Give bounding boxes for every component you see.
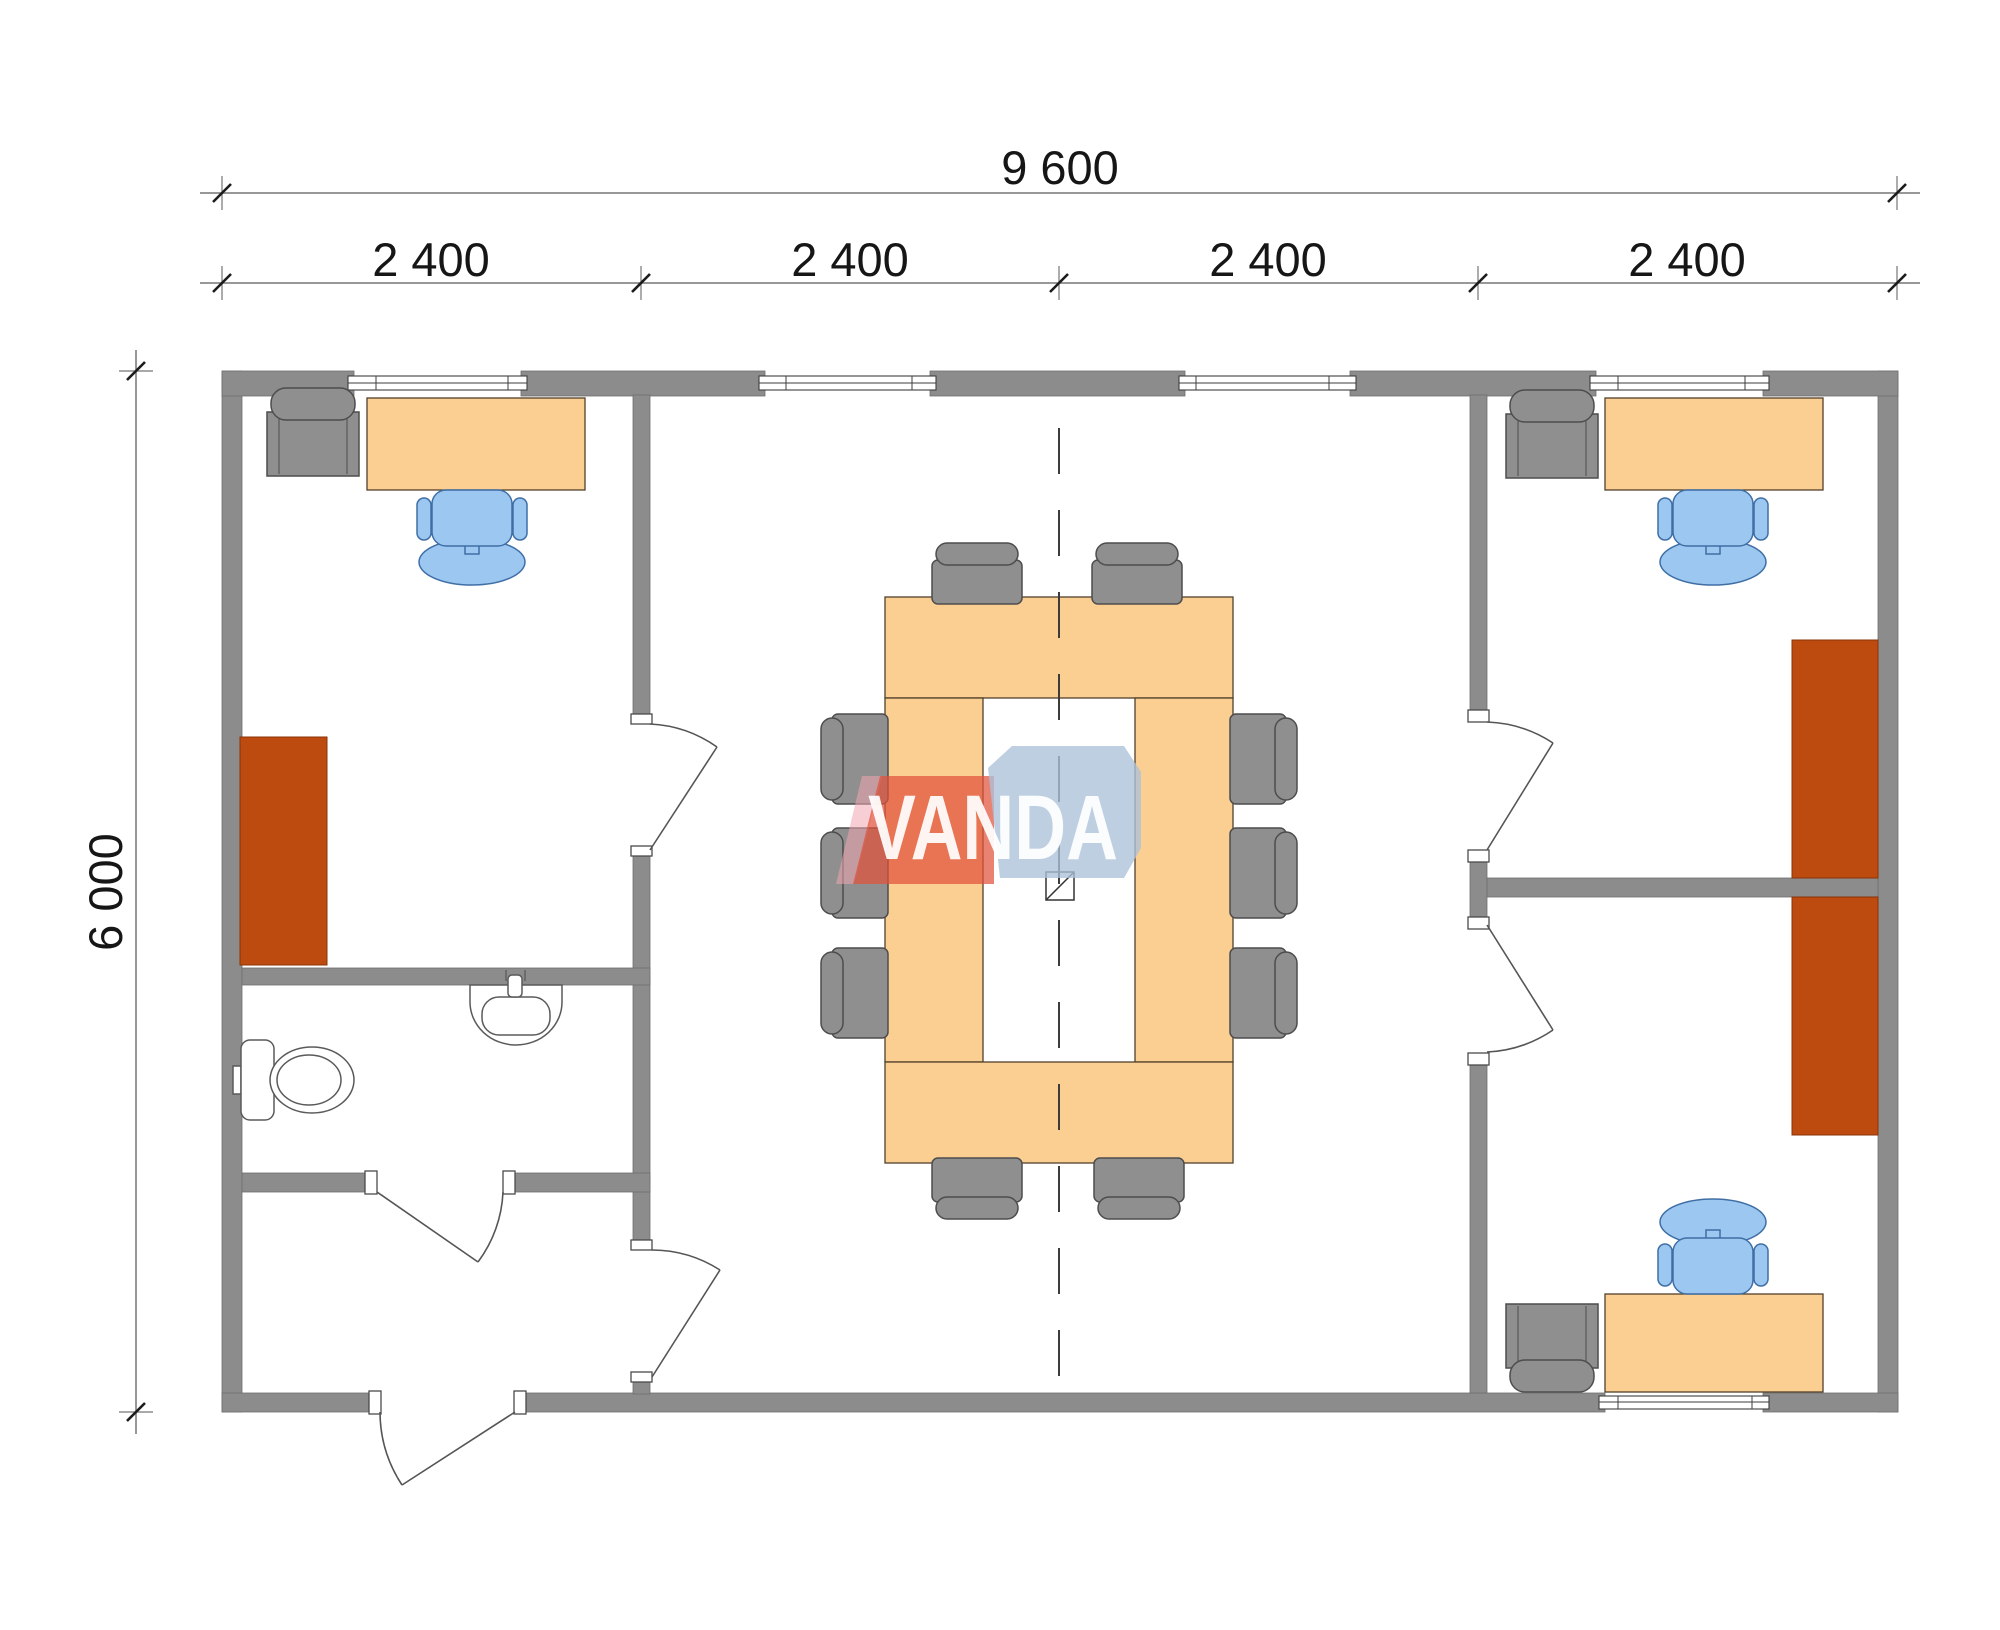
door-entrance (380, 1412, 515, 1485)
dim-modules: 2 400 2 400 2 400 2 400 (200, 233, 1920, 300)
cabinet-top-left-office (240, 737, 327, 965)
window-top-right-office (1590, 376, 1769, 390)
dim-total-width: 9 600 (200, 141, 1920, 210)
door-hall (652, 1250, 720, 1377)
conference-chair-left-3 (821, 948, 888, 1038)
task-chair-top-right-office (1658, 490, 1768, 585)
wall-right-divider (1487, 878, 1878, 897)
task-chair-top-left-office (417, 490, 527, 585)
conference-chair-bottom-1 (932, 1158, 1022, 1219)
desk-bottom-right (1605, 1294, 1823, 1392)
window-top-left-office (348, 376, 527, 390)
desk-top-left (367, 398, 585, 490)
total-width-label: 9 600 (1001, 141, 1119, 194)
window-bottom-right-office (1599, 1396, 1769, 1409)
module-3-label: 2 400 (1209, 233, 1327, 286)
conference-chair-top-2 (1092, 543, 1182, 604)
module-4-label: 2 400 (1628, 233, 1746, 286)
window-hall-left (759, 376, 936, 390)
wall-bathroom-top (242, 968, 650, 985)
cabinet-top-right-office (1792, 640, 1878, 878)
conference-chair-bottom-2 (1094, 1158, 1184, 1219)
floor-plan-svg: 9 600 2 400 2 400 2 400 2 400 6 000 (0, 0, 2000, 1630)
door-bathroom (377, 1192, 503, 1262)
cabinet-bottom-right-office (1792, 897, 1878, 1135)
floor-plan-page: 9 600 2 400 2 400 2 400 2 400 6 000 (0, 0, 2000, 1630)
wall-right (1878, 371, 1898, 1412)
vanda-logo-text: VANDA (868, 777, 1118, 879)
armchair-top-right-office (1506, 390, 1598, 478)
door-bottom-right-office (1487, 925, 1553, 1052)
door-top-left-office (650, 724, 717, 850)
conference-chair-right-3 (1230, 948, 1297, 1038)
module-1-label: 2 400 (372, 233, 490, 286)
task-chair-bottom-right-office (1658, 1199, 1768, 1294)
door-top-right-office (1487, 722, 1553, 850)
desk-top-right (1605, 398, 1823, 490)
module-2-label: 2 400 (791, 233, 909, 286)
height-label: 6 000 (79, 833, 132, 951)
armchair-top-left-office (267, 388, 359, 476)
conference-chair-top-1 (932, 543, 1022, 604)
conference-chair-right-2 (1230, 828, 1297, 918)
armchair-bottom-right-office (1506, 1304, 1598, 1392)
conference-chair-right-1 (1230, 714, 1297, 804)
window-hall-right (1179, 376, 1356, 390)
toilet-icon (233, 1040, 354, 1120)
dim-height: 6 000 (79, 350, 153, 1434)
wall-left (222, 371, 242, 1412)
